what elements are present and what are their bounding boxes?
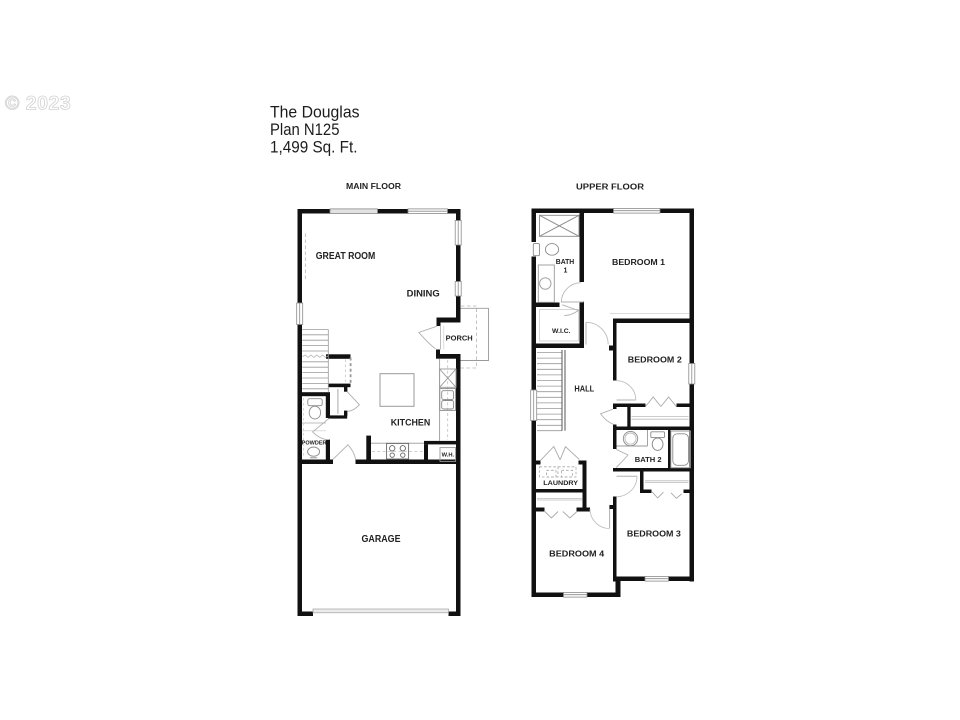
- svg-text:W.H.: W.H.: [442, 453, 455, 459]
- svg-text:GARAGE: GARAGE: [362, 533, 401, 545]
- svg-text:1,499 Sq. Ft.: 1,499 Sq. Ft.: [270, 139, 358, 157]
- svg-text:BEDROOM 2: BEDROOM 2: [628, 354, 682, 364]
- svg-text:POWDER: POWDER: [302, 441, 327, 447]
- svg-text:Plan N125: Plan N125: [270, 121, 340, 139]
- svg-text:BEDROOM 4: BEDROOM 4: [549, 548, 604, 558]
- svg-text:W.I.C.: W.I.C.: [552, 328, 571, 335]
- svg-text:BEDROOM 1: BEDROOM 1: [612, 257, 665, 267]
- svg-text:GREAT ROOM: GREAT ROOM: [316, 250, 376, 262]
- svg-text:UPPER FLOOR: UPPER FLOOR: [576, 182, 645, 192]
- svg-text:BATH 2: BATH 2: [635, 457, 662, 464]
- svg-text:BATH: BATH: [556, 259, 575, 266]
- svg-text:The Douglas: The Douglas: [270, 104, 360, 122]
- svg-text:DINING: DINING: [407, 288, 440, 299]
- svg-text:PORCH: PORCH: [446, 334, 473, 343]
- svg-text:HALL: HALL: [574, 385, 594, 394]
- svg-text:MAIN FLOOR: MAIN FLOOR: [346, 181, 402, 191]
- svg-text:1: 1: [564, 267, 568, 274]
- svg-text:© 2023: © 2023: [5, 93, 71, 115]
- svg-text:KITCHEN: KITCHEN: [391, 416, 431, 427]
- svg-text:BEDROOM 3: BEDROOM 3: [627, 528, 681, 538]
- svg-text:LAUNDRY: LAUNDRY: [543, 480, 578, 487]
